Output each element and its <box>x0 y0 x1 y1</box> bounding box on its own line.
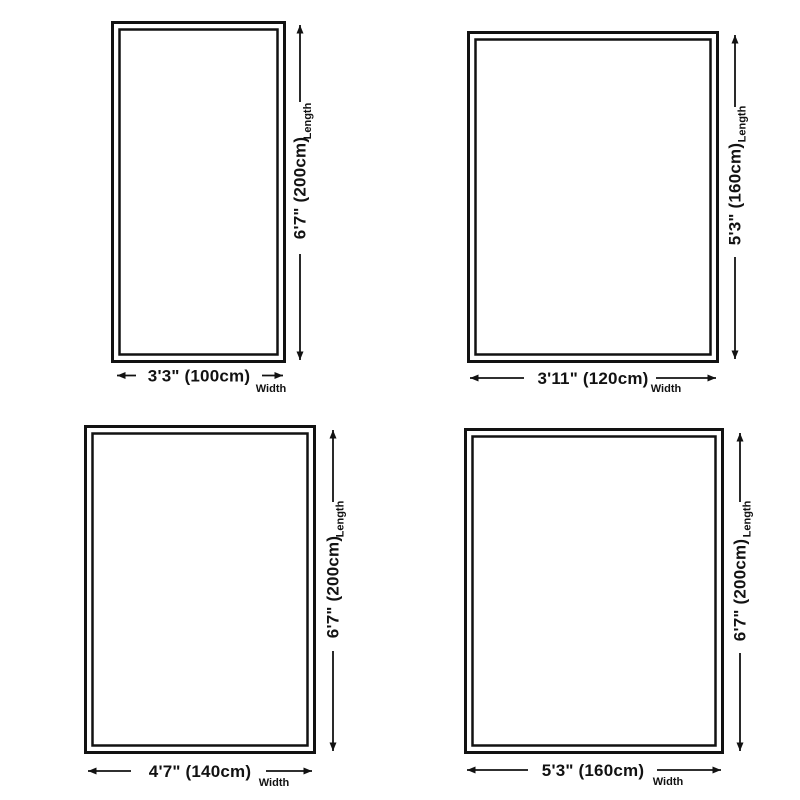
width-caption: Width <box>651 383 682 395</box>
length-caption: Length <box>742 500 754 537</box>
rug-outline-outer <box>86 427 315 753</box>
width-caption: Width <box>256 383 287 395</box>
rug-outline-inner <box>93 434 308 746</box>
length-caption: Length <box>302 102 314 139</box>
rug-size-chart: Length 6'7" (200cm) 3'3" (100cm) Width L… <box>0 0 800 800</box>
rug-outline-outer <box>469 33 718 362</box>
rug-outline-inner <box>473 437 716 746</box>
rug-outline-inner <box>120 30 278 355</box>
length-dimension-label: 5'3" (160cm) <box>726 143 745 245</box>
size-diagram-160x200cm: Length 6'7" (200cm) 5'3" (160cm) Width <box>466 430 754 789</box>
size-diagram-120x160cm: Length 5'3" (160cm) 3'11" (120cm) Width <box>469 33 749 396</box>
size-diagram-100x200cm: Length 6'7" (200cm) 3'3" (100cm) Width <box>113 23 315 396</box>
width-dimension-label: 5'3" (160cm) <box>542 761 644 780</box>
width-dimension-label: 3'11" (120cm) <box>537 369 648 388</box>
width-caption: Width <box>259 777 290 789</box>
width-caption: Width <box>653 776 684 788</box>
length-caption: Length <box>335 500 347 537</box>
length-dimension-label: 6'7" (200cm) <box>731 539 750 641</box>
rug-outline-outer <box>466 430 723 753</box>
width-dimension-label: 3'3" (100cm) <box>148 367 250 386</box>
rug-outline-outer <box>113 23 285 362</box>
rug-outline-inner <box>476 40 711 355</box>
size-diagram-140x200cm: Length 6'7" (200cm) 4'7" (140cm) Width <box>86 427 347 790</box>
size-chart-canvas: Length 6'7" (200cm) 3'3" (100cm) Width L… <box>0 0 800 800</box>
length-dimension-label: 6'7" (200cm) <box>324 536 343 638</box>
length-caption: Length <box>737 105 749 142</box>
length-dimension-label: 6'7" (200cm) <box>291 137 310 239</box>
width-dimension-label: 4'7" (140cm) <box>149 762 251 781</box>
